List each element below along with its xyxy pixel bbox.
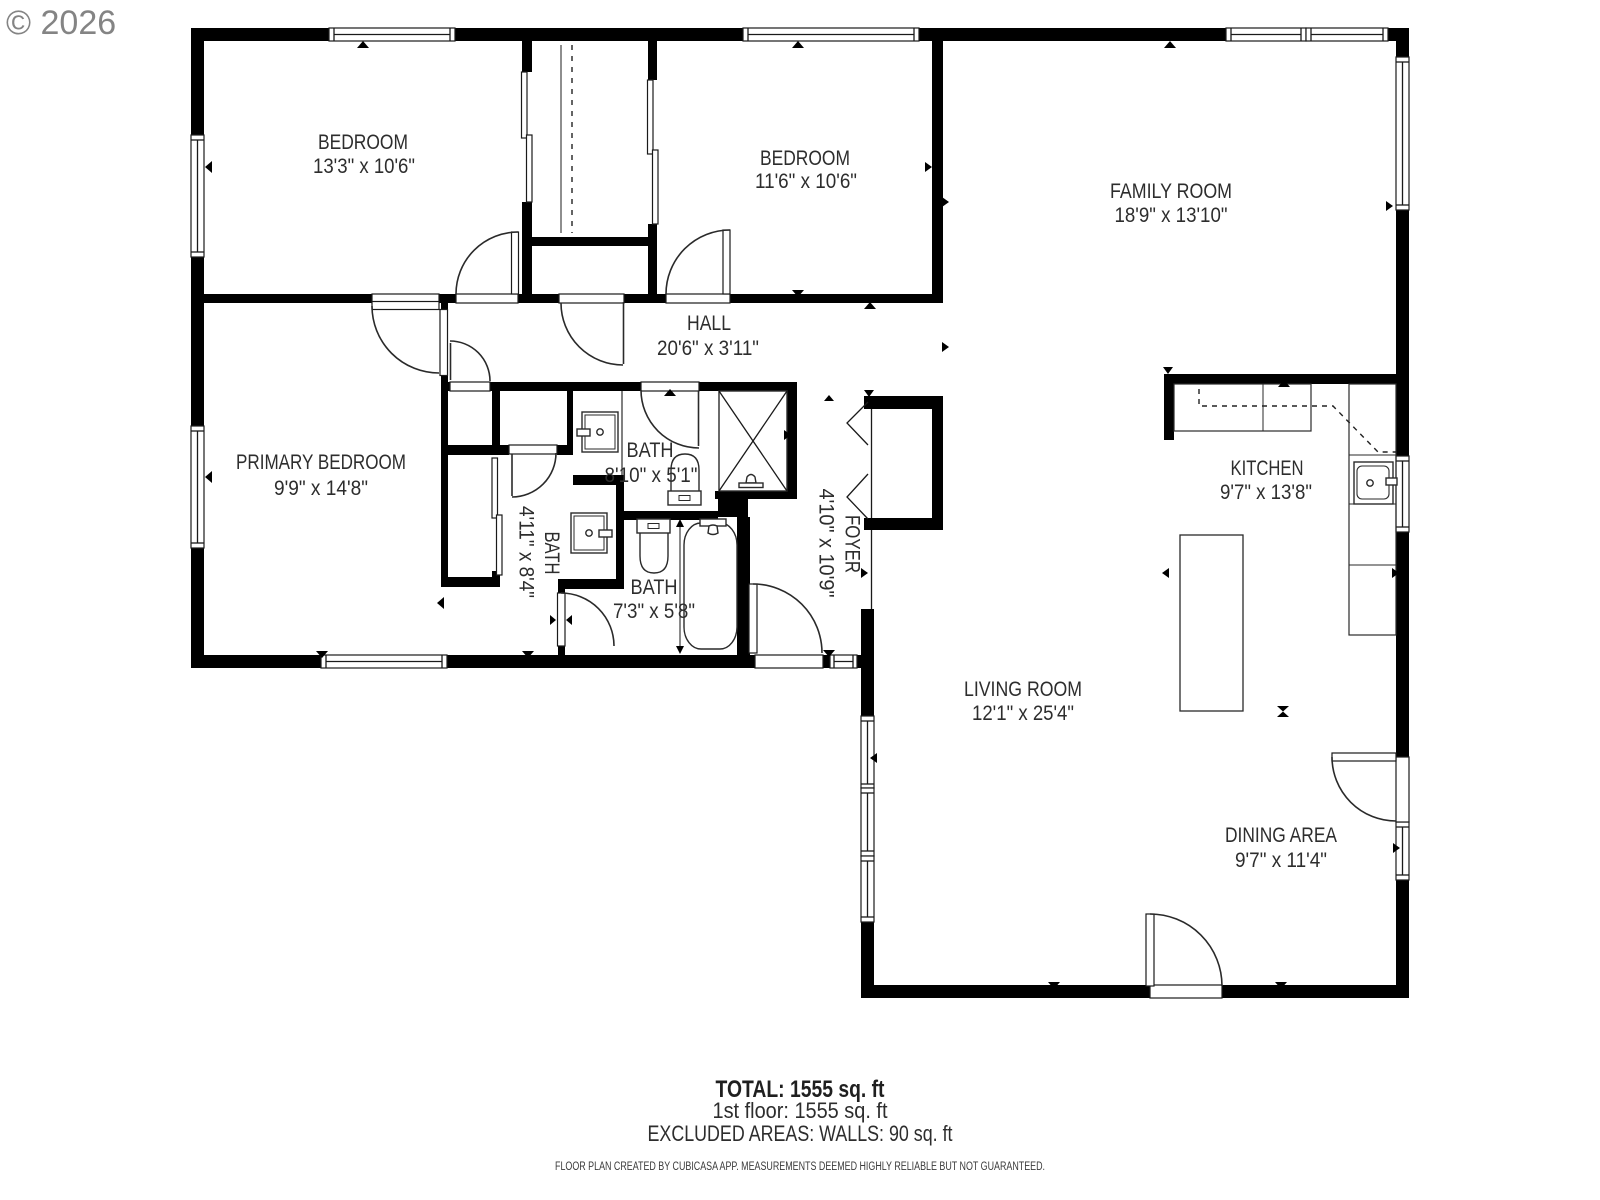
svg-text:HALL: HALL (687, 312, 731, 335)
svg-text:FLOOR PLAN CREATED BY CUBICASA: FLOOR PLAN CREATED BY CUBICASA APP. MEAS… (555, 1161, 1045, 1173)
svg-text:© 2026: © 2026 (6, 4, 116, 42)
svg-text:13'3" x 10'6": 13'3" x 10'6" (313, 155, 415, 178)
svg-text:9'9" x 14'8": 9'9" x 14'8" (274, 477, 368, 500)
svg-text:KITCHEN: KITCHEN (1231, 457, 1304, 480)
svg-text:4'11" x 8'4": 4'11" x 8'4" (515, 506, 538, 598)
svg-text:1st floor: 1555 sq. ft: 1st floor: 1555 sq. ft (713, 1098, 888, 1123)
svg-text:BATH: BATH (631, 576, 678, 599)
svg-text:BATH: BATH (540, 532, 563, 575)
svg-text:DINING AREA: DINING AREA (1225, 824, 1337, 847)
svg-text:EXCLUDED AREAS: WALLS: 90 sq.: EXCLUDED AREAS: WALLS: 90 sq. ft (648, 1121, 953, 1146)
svg-text:LIVING ROOM: LIVING ROOM (964, 678, 1082, 701)
svg-text:9'7" x 13'8": 9'7" x 13'8" (1220, 481, 1312, 504)
svg-text:PRIMARY BEDROOM: PRIMARY BEDROOM (236, 451, 406, 474)
svg-text:9'7" x 11'4": 9'7" x 11'4" (1235, 849, 1327, 872)
svg-text:FAMILY ROOM: FAMILY ROOM (1110, 180, 1232, 203)
svg-text:BATH: BATH (627, 439, 674, 462)
svg-text:12'1" x 25'4": 12'1" x 25'4" (972, 702, 1074, 725)
svg-text:18'9" x 13'10": 18'9" x 13'10" (1115, 204, 1228, 227)
svg-text:4'10" x 10'9": 4'10" x 10'9" (815, 489, 838, 598)
svg-text:11'6" x 10'6": 11'6" x 10'6" (755, 170, 857, 193)
svg-text:FOYER: FOYER (841, 515, 864, 573)
svg-text:20'6" x 3'11": 20'6" x 3'11" (657, 337, 759, 360)
svg-text:BEDROOM: BEDROOM (760, 147, 850, 170)
svg-text:BEDROOM: BEDROOM (318, 131, 408, 154)
svg-text:8'10" x 5'1": 8'10" x 5'1" (605, 464, 698, 487)
svg-text:7'3" x 5'8": 7'3" x 5'8" (613, 600, 695, 623)
